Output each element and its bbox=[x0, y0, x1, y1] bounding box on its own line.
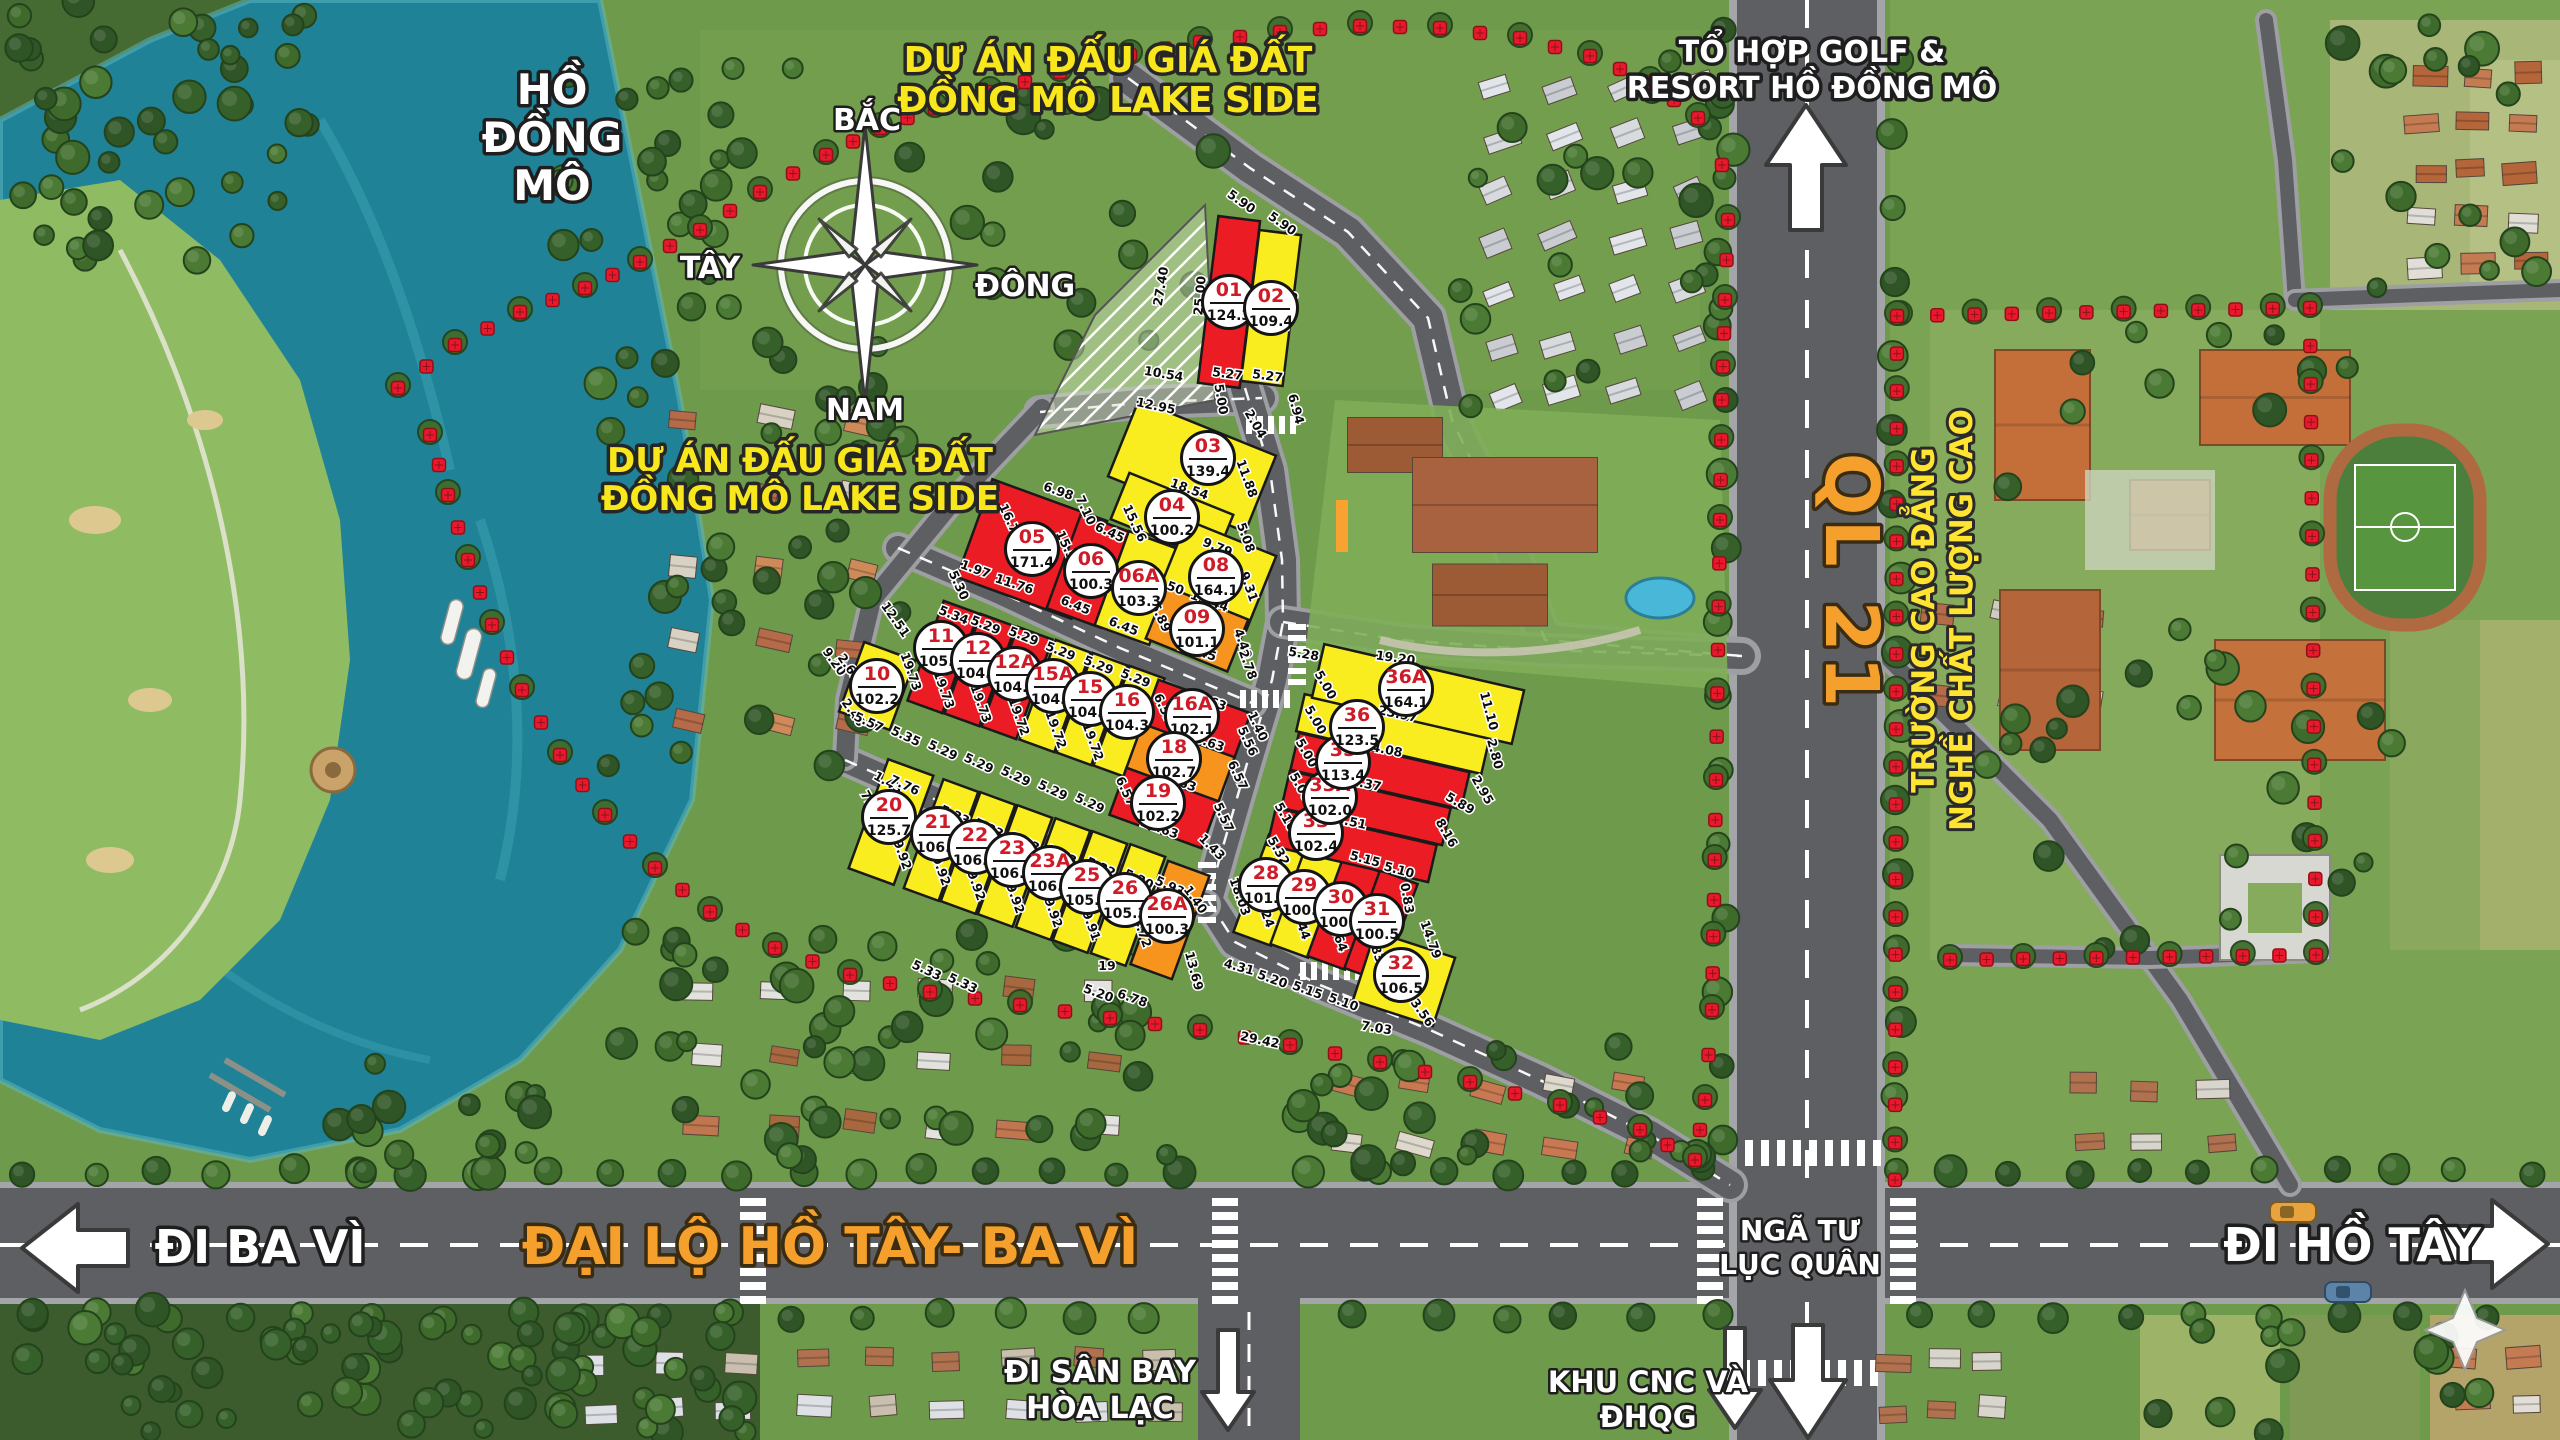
plot-number: 15 bbox=[1077, 676, 1103, 698]
plot-badge-04[interactable]: 04100.2 bbox=[1146, 491, 1199, 544]
plot-number: 28 bbox=[1253, 862, 1279, 884]
plot-number: 25 bbox=[1074, 864, 1100, 886]
plot-number: 15A bbox=[1032, 663, 1073, 685]
plot-area-value: 109.4 bbox=[1249, 314, 1294, 330]
plot-number: 20 bbox=[876, 794, 902, 816]
plot-area-value: 164.1 bbox=[1384, 695, 1428, 711]
plot-badge-36A[interactable]: 36A164.1 bbox=[1380, 663, 1433, 716]
plot-area-value: 164.1 bbox=[1194, 583, 1238, 599]
plot-area-value: 125.7 bbox=[867, 823, 911, 839]
compass-north-label: BẮC bbox=[833, 98, 901, 138]
plot-badge-03[interactable]: 03139.4 bbox=[1182, 432, 1235, 485]
plot-area-value: 100.3 bbox=[1069, 577, 1113, 593]
plot-area-value: 139.4 bbox=[1186, 464, 1231, 480]
golf-resort-label-line1: TỔ HỢP GOLF & bbox=[1679, 28, 1946, 70]
plot-number: 21 bbox=[925, 811, 951, 833]
highway-ql21-label: QL 21 bbox=[1808, 453, 1894, 712]
project-label-left-line2: ĐỒNG MÔ LAKE SIDE bbox=[601, 474, 999, 519]
plot-number: 12 bbox=[965, 637, 991, 659]
plot-badge-36[interactable]: 36123.5 bbox=[1331, 701, 1384, 754]
plot-number: 16 bbox=[1114, 689, 1140, 711]
project-label-left-line1: DỰ ÁN ĐẤU GIÁ ĐẤT bbox=[607, 436, 994, 481]
plot-area-value: 100.2 bbox=[1150, 523, 1194, 539]
plot-number: 08 bbox=[1203, 554, 1229, 576]
plot-number: 22 bbox=[962, 824, 988, 846]
plot-number: 06A bbox=[1118, 565, 1159, 587]
plot-number: 06 bbox=[1078, 548, 1104, 570]
plot-number: 10 bbox=[864, 663, 890, 685]
plot-number: 01 bbox=[1216, 279, 1242, 301]
lake-label-line3: MÔ bbox=[513, 160, 591, 210]
direction-west-label: ĐI BA VÌ bbox=[154, 1220, 365, 1274]
plot-number: 11 bbox=[928, 625, 954, 647]
plot-area-value: 101.1 bbox=[1175, 635, 1219, 651]
plot-number: 19 bbox=[1145, 780, 1171, 802]
plot-number: 23 bbox=[999, 837, 1025, 859]
plot-area-value: 171.4 bbox=[1010, 555, 1055, 571]
plot-area-value: 106.5 bbox=[1379, 981, 1423, 997]
plot-badge-16[interactable]: 16104.3 bbox=[1101, 686, 1154, 739]
plot-number: 32 bbox=[1388, 952, 1414, 974]
plot-number: 26 bbox=[1112, 877, 1138, 899]
plot-area-value: 102.2 bbox=[855, 692, 899, 708]
college-label-line1: TRƯỜNG CAO ĐẲNG bbox=[1900, 447, 1942, 792]
plot-badge-02[interactable]: 02109.4 bbox=[1245, 282, 1298, 335]
plot-area-value: 113.4 bbox=[1321, 768, 1366, 784]
airport-direction-label-line1: ĐI SÂN BAY bbox=[1004, 1354, 1197, 1390]
plot-number: 23A bbox=[1029, 850, 1070, 872]
plot-number: 02 bbox=[1258, 285, 1284, 307]
lake-label-line2: ĐỒNG bbox=[482, 107, 623, 162]
avenue-name-label: ĐẠI LỘ HỒ TÂY- BA VÌ bbox=[522, 1209, 1139, 1277]
plot-number: 29 bbox=[1291, 874, 1317, 896]
plot-number: 05 bbox=[1019, 526, 1045, 548]
compass-east-label: ĐÔNG bbox=[975, 267, 1075, 304]
plot-badge-08[interactable]: 08164.1 bbox=[1190, 551, 1243, 604]
masterplan-map: 5.905.9027.4025.0022.1819.365.275.2710.5… bbox=[0, 0, 2560, 1440]
plot-badge-10[interactable]: 10102.2 bbox=[851, 660, 904, 713]
plot-area-value: 104.3 bbox=[1105, 718, 1149, 734]
plot-number: 09 bbox=[1184, 606, 1210, 628]
plot-number: 26A bbox=[1146, 893, 1187, 915]
lake-label-line1: HỒ bbox=[517, 59, 588, 114]
tech-park-label-line1: KHU CNC VÀ bbox=[1548, 1365, 1749, 1399]
college-label-line2: NGHỀ CHẤT LƯỢNG CAO bbox=[1940, 409, 1980, 831]
plot-area-value: 103.3 bbox=[1117, 594, 1161, 610]
plot-area-value: 102.4 bbox=[1294, 839, 1339, 855]
plot-number: 12A bbox=[994, 651, 1035, 673]
plot-badge-09[interactable]: 09101.1 bbox=[1171, 603, 1224, 656]
airport-direction-label-line2: HÒA LẠC bbox=[1026, 1389, 1174, 1426]
golf-resort-label-line2: RESORT HỒ ĐỒNG MÔ bbox=[1627, 65, 1998, 106]
direction-east-label: ĐI HỒ TÂY bbox=[2223, 1212, 2481, 1272]
plot-number: 18 bbox=[1161, 736, 1187, 758]
map-canvas: 5.905.9027.4025.0022.1819.365.275.2710.5… bbox=[0, 0, 2560, 1440]
plot-badge-06[interactable]: 06100.3 bbox=[1065, 545, 1118, 598]
plot-number: 31 bbox=[1364, 898, 1390, 920]
plot-area-value: 102.0 bbox=[1308, 803, 1353, 819]
plot-area-value: 123.5 bbox=[1335, 733, 1379, 749]
plot-badge-26A[interactable]: 26A100.3 bbox=[1141, 890, 1194, 943]
junction-label-line1: NGÃ TƯ bbox=[1740, 1213, 1861, 1247]
compass-west-label: TÂY bbox=[680, 250, 741, 286]
plot-number: 30 bbox=[1328, 886, 1354, 908]
plot-badge-32[interactable]: 32106.5 bbox=[1375, 949, 1428, 1002]
plot-number: 04 bbox=[1159, 494, 1185, 516]
project-label-top-line2: ĐỒNG MÔ LAKE SIDE bbox=[897, 74, 1319, 121]
tech-park-label-line2: ĐHQG bbox=[1599, 1400, 1696, 1434]
plot-area-value: 102.2 bbox=[1136, 809, 1180, 825]
plot-number: 36 bbox=[1344, 704, 1370, 726]
plot-area-value: 100.3 bbox=[1145, 922, 1189, 938]
dimension-label: 19 bbox=[1098, 958, 1115, 973]
plot-number: 16A bbox=[1171, 693, 1212, 715]
plot-number: 36A bbox=[1385, 666, 1426, 688]
plot-badge-06A[interactable]: 06A103.3 bbox=[1113, 562, 1166, 615]
plot-badge-05[interactable]: 05171.4 bbox=[1006, 523, 1059, 576]
plot-badge-20[interactable]: 20125.7 bbox=[863, 791, 916, 844]
project-label-top-line1: DỰ ÁN ĐẤU GIÁ ĐẤT bbox=[904, 34, 1313, 81]
junction-label-line2: LỤC QUÂN bbox=[1719, 1247, 1881, 1281]
plot-badge-31[interactable]: 31100.5 bbox=[1351, 895, 1404, 948]
plot-area-value: 100.5 bbox=[1355, 927, 1399, 943]
compass-south-label: NAM bbox=[826, 393, 904, 428]
plot-number: 03 bbox=[1195, 435, 1221, 457]
plot-badge-19[interactable]: 19102.2 bbox=[1132, 777, 1185, 830]
